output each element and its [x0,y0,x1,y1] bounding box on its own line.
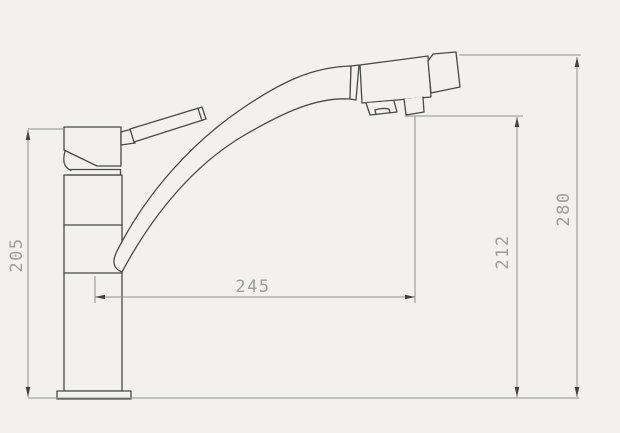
faucet-spout [114,66,351,272]
dimension-label-205: 205 [7,237,27,272]
faucet-neck-ring [67,170,121,176]
dimension-label-212: 212 [493,234,513,269]
arrow-down-icon [26,387,31,397]
arrow-down-icon [515,387,520,397]
shoulder-arc [64,151,71,171]
dimension-total-height: 280 [459,55,581,397]
arrow-up-icon [26,130,31,140]
dimension-label-245: 245 [235,277,270,297]
faucet-cartridge-cap [64,127,121,166]
arrow-right-icon [405,295,415,300]
drawing-svg: 205 245 212 [0,0,620,433]
dimension-body-height: 205 [7,129,64,397]
spout-head-connector-ring [350,65,359,100]
faucet-handle-lever [130,107,206,142]
arrow-up-icon [515,117,520,127]
dimension-outlet-height: 212 [405,116,523,397]
spray-head-body [360,56,431,103]
arrow-down-icon [575,387,580,397]
dimension-label-280: 280 [554,191,574,226]
faucet-dimension-drawing: 205 245 212 [0,0,620,433]
faucet-outline [57,52,460,399]
arrow-up-icon [575,57,580,67]
spray-head-end-piece [428,52,460,93]
aerator-nozzle [404,97,424,115]
faucet-body-column [64,175,122,391]
